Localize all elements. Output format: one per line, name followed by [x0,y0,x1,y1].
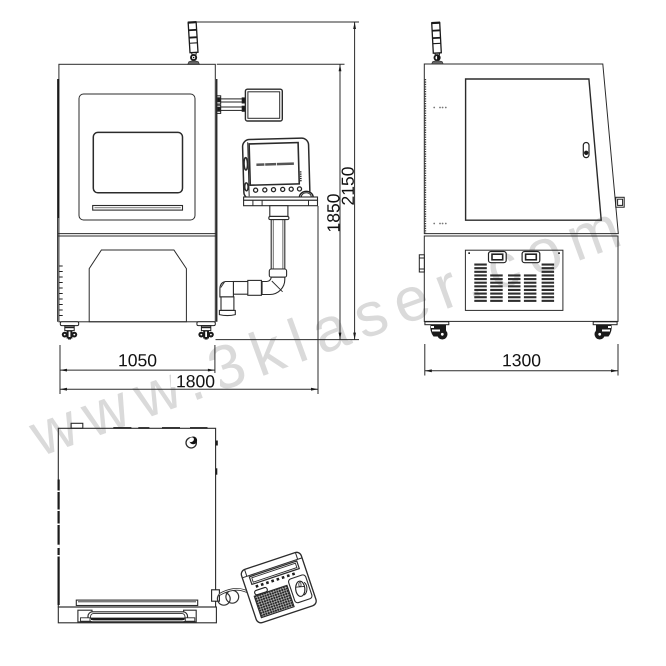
svg-text:1050: 1050 [118,350,157,370]
svg-text:1850: 1850 [323,193,343,232]
svg-text:1800: 1800 [176,371,215,391]
svg-text:1300: 1300 [502,350,541,370]
